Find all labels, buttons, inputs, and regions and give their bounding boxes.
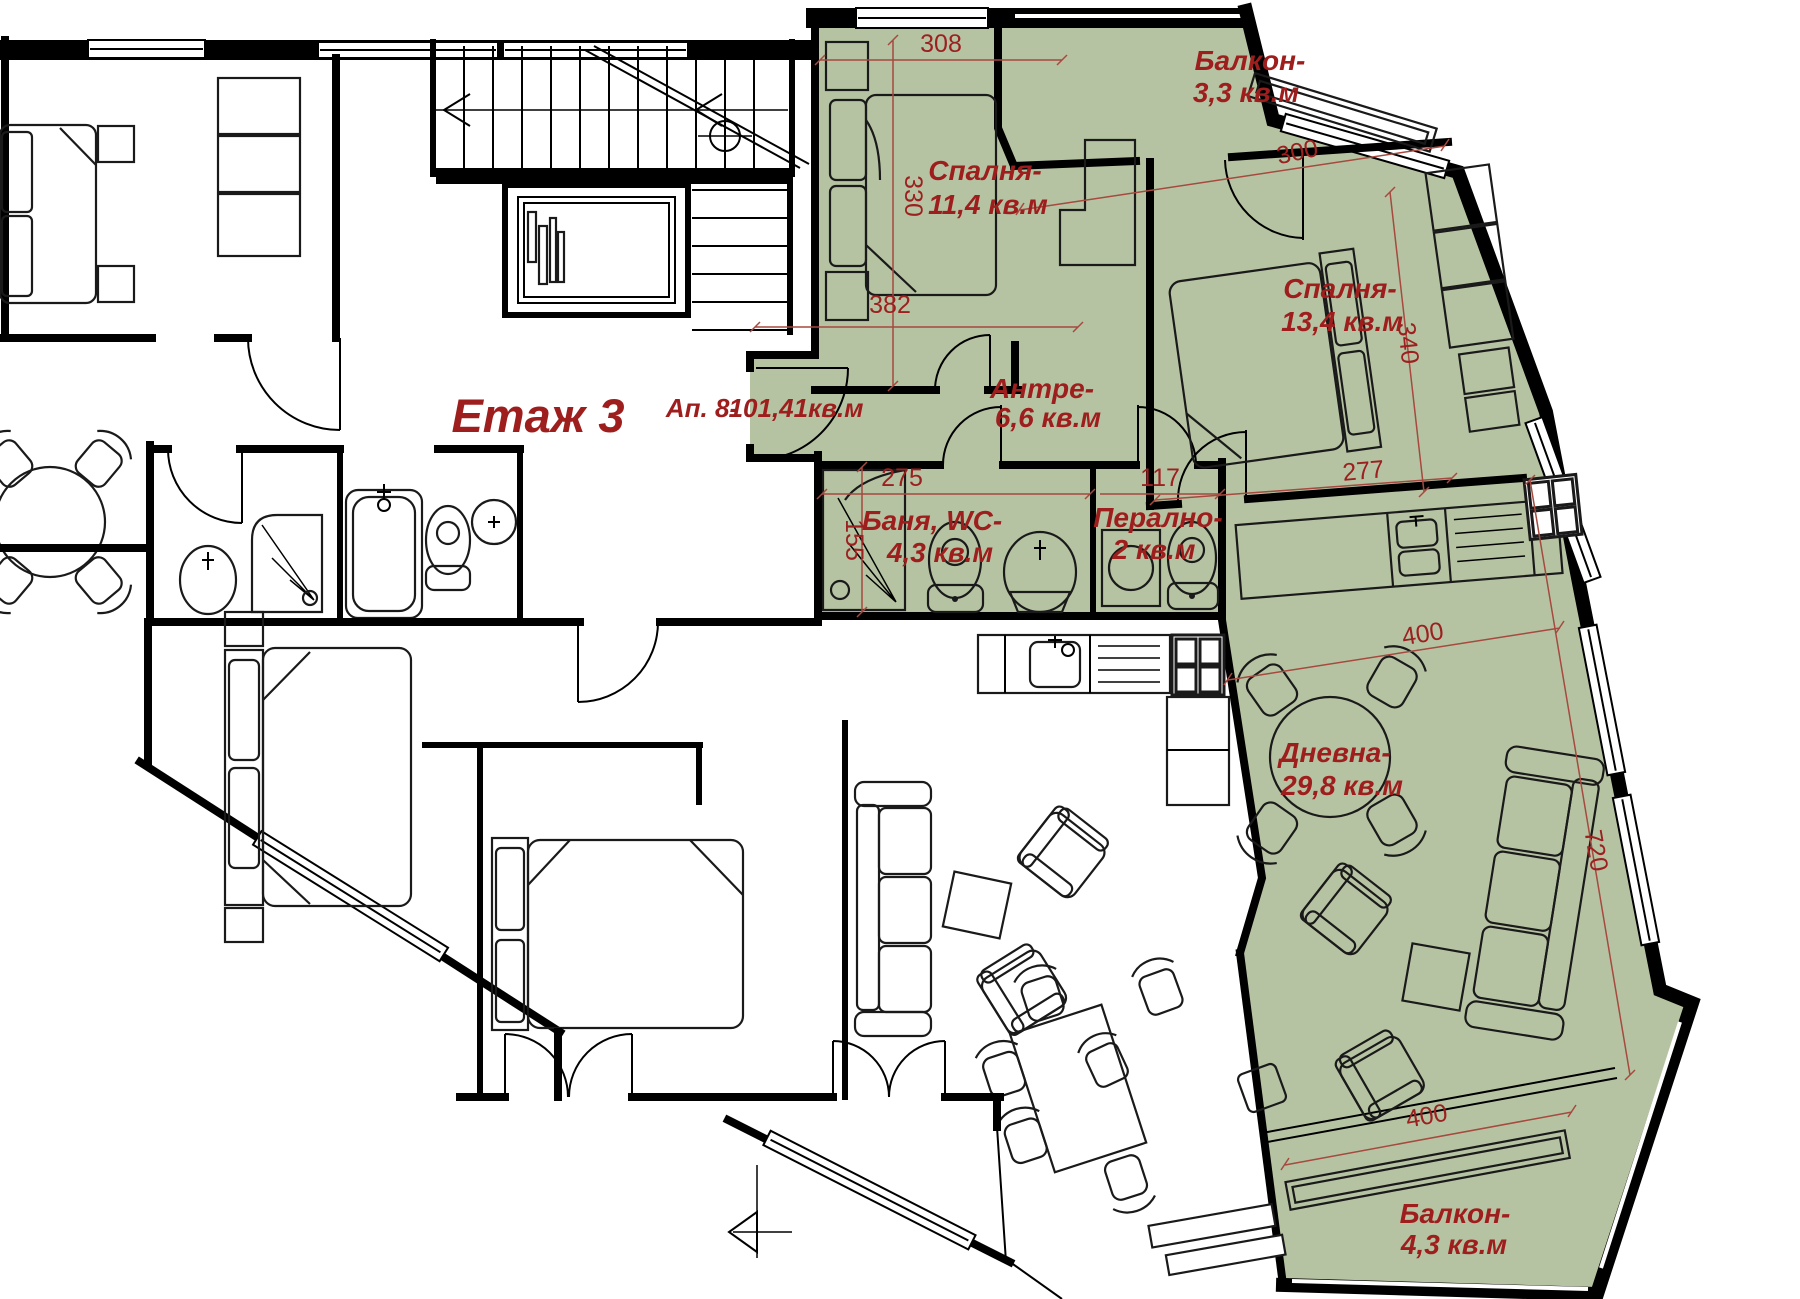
dim-275: 275 (881, 464, 923, 492)
room-label-living-name: Дневна- (1277, 737, 1390, 768)
room-label-bedroom-small-name: Спалня- (928, 155, 1041, 186)
room-label-bedroom-small-area: 11,4 кв.м (928, 189, 1048, 220)
room-label-balcony-top-area: 3,3 кв.м (1193, 77, 1300, 108)
apartment-number-label: Ап. 8- (665, 393, 738, 423)
room-label-balcony-bottom-area: 4,3 кв.м (1400, 1229, 1508, 1260)
room-label-antre-name: Антре- (989, 373, 1094, 404)
apartment-area-label: 101,41кв.м (729, 393, 864, 423)
floor-plan-drawing: 308 330 382 300 340 277 275 117 155 400 … (0, 0, 1800, 1299)
dim-277: 277 (1341, 455, 1385, 487)
room-label-bedroom-large-name: Спалня- (1283, 273, 1396, 304)
stove-icon (1172, 635, 1224, 695)
floor-plan-page: 308 330 382 300 340 277 275 117 155 400 … (0, 0, 1800, 1299)
room-label-laundry-area: 2 кв.м (1112, 534, 1196, 565)
elevator (505, 185, 688, 315)
floor-title: Етаж 3 (451, 389, 624, 442)
dim-117: 117 (1140, 464, 1180, 492)
room-label-living-area: 29,8 кв.м (1280, 770, 1403, 801)
dim-330: 330 (899, 175, 927, 217)
room-label-bath-name: Баня, WC- (862, 505, 1002, 536)
north-arrow-icon (729, 1165, 792, 1258)
room-label-balcony-bottom-name: Балкон- (1400, 1198, 1511, 1229)
staircase (433, 42, 809, 332)
room-label-bath-area: 4,3 кв.м (886, 537, 994, 568)
room-label-antre-area: 6,6 кв.м (995, 402, 1102, 433)
dim-308: 308 (920, 30, 962, 58)
room-label-balcony-top-name: Балкон- (1195, 45, 1306, 76)
dim-382: 382 (869, 291, 911, 319)
room-label-laundry-name: Перално- (1093, 502, 1223, 533)
room-label-bedroom-large-area: 13,4 кв.м (1281, 306, 1403, 337)
